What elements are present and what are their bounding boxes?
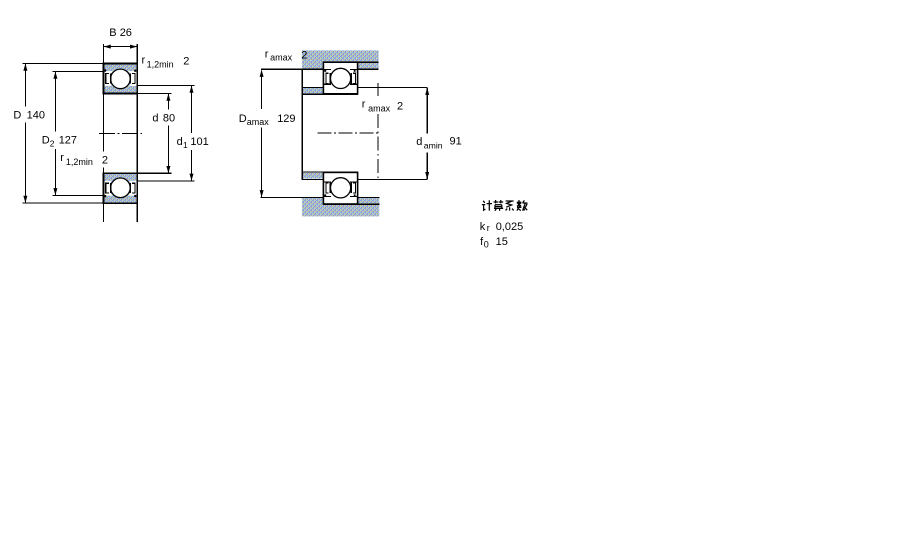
svg-text:127: 127 (59, 135, 77, 147)
svg-text:1,2min: 1,2min (66, 157, 93, 167)
svg-text:d: d (416, 136, 422, 148)
svg-text:2: 2 (50, 139, 55, 149)
svg-text:amin: amin (424, 140, 443, 150)
svg-text:r: r (60, 152, 64, 164)
svg-text:r: r (142, 54, 146, 66)
svg-text:129: 129 (277, 113, 295, 125)
svg-text:r: r (265, 48, 269, 60)
svg-text:D: D (42, 135, 50, 147)
svg-text:d: d (152, 112, 158, 124)
svg-text:r: r (362, 99, 366, 111)
svg-text:101: 101 (190, 136, 208, 148)
svg-text:80: 80 (163, 112, 175, 124)
svg-text:2: 2 (183, 56, 189, 68)
svg-text:d: d (177, 136, 183, 148)
svg-text:91: 91 (450, 136, 462, 148)
svg-text:amax: amax (247, 117, 270, 127)
svg-text:amax: amax (368, 103, 391, 113)
svg-text:15: 15 (496, 236, 508, 248)
svg-text:0: 0 (484, 239, 489, 249)
svg-text:2: 2 (102, 154, 108, 166)
svg-text:1,2min: 1,2min (147, 59, 174, 69)
svg-text:2: 2 (301, 49, 307, 61)
svg-text:B 26: B 26 (109, 27, 132, 39)
svg-text:amax: amax (270, 53, 293, 63)
svg-text:2: 2 (397, 101, 403, 113)
svg-text:0,025: 0,025 (496, 221, 524, 233)
svg-text:D: D (239, 113, 247, 125)
svg-text:140: 140 (27, 109, 45, 121)
svg-text:r: r (487, 223, 490, 233)
svg-text:k: k (480, 221, 486, 233)
svg-text:1: 1 (183, 140, 188, 150)
svg-text:D: D (13, 109, 21, 121)
